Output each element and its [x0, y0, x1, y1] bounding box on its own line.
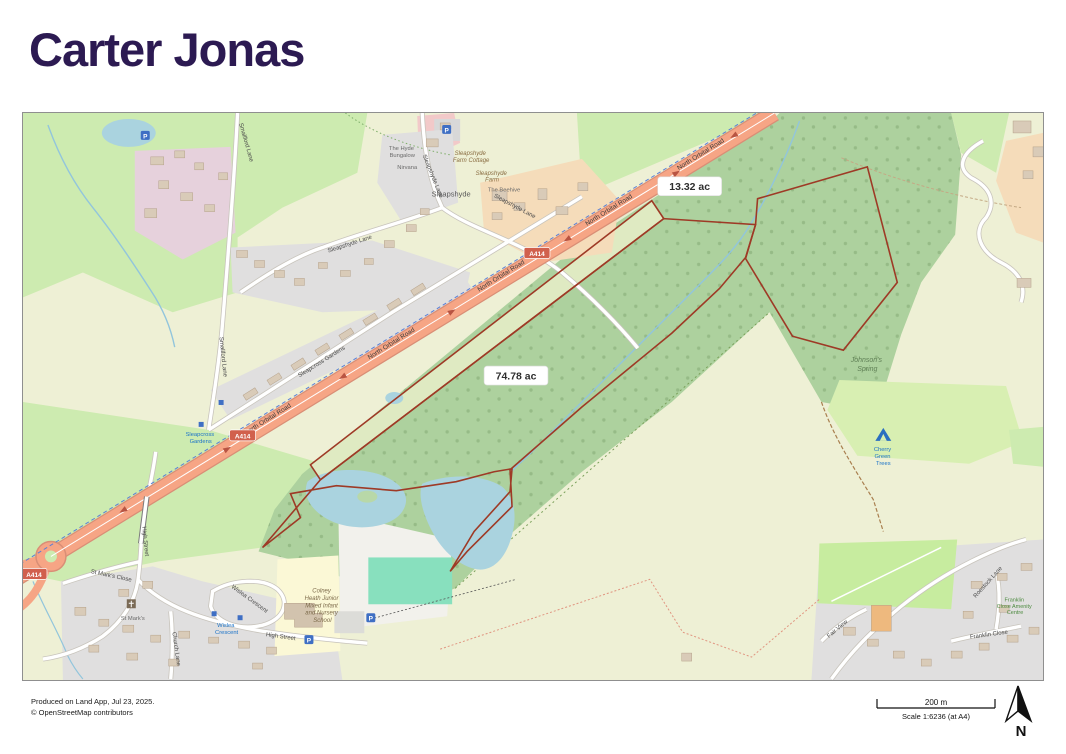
landuse-layer	[23, 113, 1043, 680]
school-pitch	[368, 557, 452, 604]
lake-island	[357, 491, 377, 503]
parcel-area-label-7478: 74.78 ac	[484, 366, 548, 385]
svg-text:A414: A414	[235, 433, 251, 440]
svg-text:13.32 ac: 13.32 ac	[669, 182, 710, 193]
svg-text:P: P	[445, 127, 450, 134]
svg-text:P: P	[143, 133, 148, 140]
north-arrow-right-icon	[1018, 686, 1031, 721]
svg-text:A414: A414	[529, 251, 545, 258]
svg-text:P: P	[307, 638, 312, 645]
north-arrow-left-icon	[1006, 686, 1018, 721]
church-icon	[127, 599, 136, 608]
a414-badge: A414	[23, 568, 47, 579]
parking-icon-school-1: P	[366, 613, 375, 622]
scale-ratio-label: Scale 1:6236 (at A4)	[902, 712, 970, 721]
small-pond	[385, 392, 403, 404]
produced-on-text: Produced on Land App, Jul 23, 2025.	[31, 696, 154, 707]
bus-stop-icon	[199, 422, 204, 427]
place-label-sleapshyde: Sleapshyde	[432, 190, 471, 199]
scale-distance-label: 200 m	[925, 698, 948, 707]
small-green-field	[1009, 427, 1043, 467]
roestock-house	[871, 605, 891, 631]
svg-text:A414: A414	[26, 572, 42, 579]
north-arrow: N	[1001, 683, 1041, 746]
parcel-area-label-1332: 13.32 ac	[658, 177, 722, 196]
scale-bar: 200 m Scale 1:6236 (at A4)	[874, 692, 1000, 731]
map-canvas: P P P P	[23, 113, 1043, 680]
place-label-sleapshyde-farm-cottage: Sleapshyde Farm Cottage	[453, 151, 490, 164]
parking-icon-retail: P	[442, 125, 451, 134]
transit-label-sleapcross: Sleapcross Gardens	[186, 432, 216, 445]
place-label-the-beehive: The Beehive	[488, 188, 520, 194]
a414-badge: A414	[524, 248, 550, 259]
osm-attribution-text: © OpenStreetMap contributors	[31, 707, 154, 718]
place-label-cherry-green-trees: Cherry Green Trees	[874, 447, 893, 467]
bus-stop-icon	[212, 611, 217, 616]
carter-jonas-logo: Carter Jonas	[29, 22, 304, 77]
place-label-hyde-bungalow: The Hyde Bungalow	[389, 146, 416, 159]
bus-stop-icon	[219, 400, 224, 405]
map-frame: P P P P	[22, 112, 1044, 681]
parking-icon-pond: P	[141, 131, 150, 140]
campsite-field	[827, 380, 1023, 464]
bus-stop-icon	[238, 615, 243, 620]
page: Carter Jonas	[0, 0, 1066, 754]
north-label: N	[1016, 723, 1027, 740]
svg-text:P: P	[369, 616, 374, 623]
place-label-nirvana: Nirvana	[397, 165, 418, 171]
transit-label-wislea: Wislea Crescent	[215, 623, 238, 636]
svg-text:74.78 ac: 74.78 ac	[496, 372, 537, 383]
parking-icon-school-2: P	[304, 635, 313, 644]
place-label-st-marks: St Mark's	[121, 616, 145, 622]
footer: Produced on Land App, Jul 23, 2025. © Op…	[31, 696, 154, 718]
a414-badge: A414	[230, 430, 256, 441]
